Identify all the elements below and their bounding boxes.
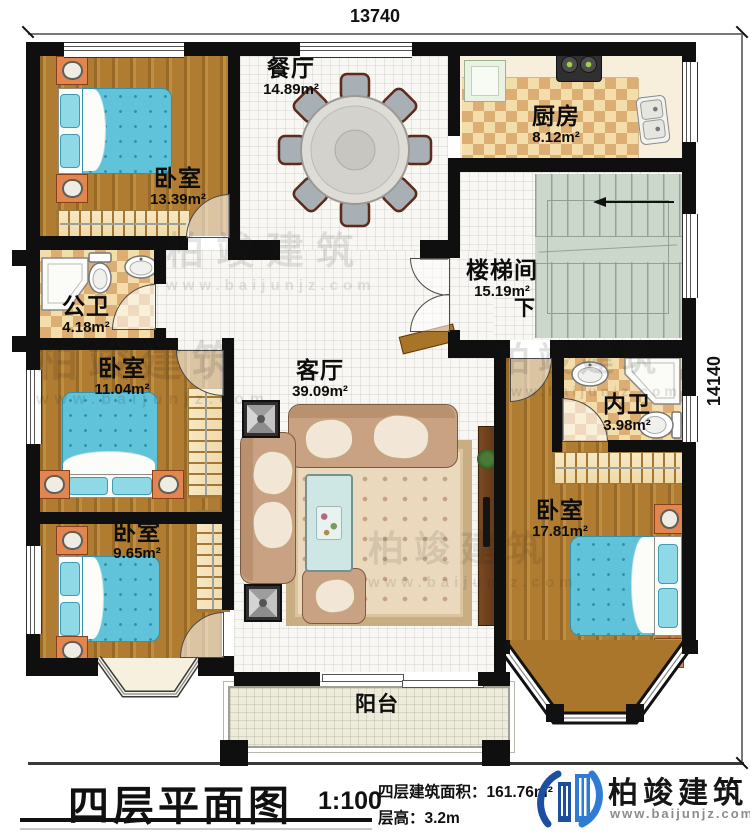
window bbox=[26, 370, 42, 444]
dimension-line-top bbox=[28, 33, 744, 35]
stair-rail bbox=[547, 200, 669, 314]
wall bbox=[478, 672, 510, 686]
room-area: 3.98m² bbox=[603, 417, 651, 434]
wall bbox=[12, 336, 26, 352]
armchair bbox=[302, 568, 366, 624]
bed-sheet-fold bbox=[83, 89, 106, 171]
room-area: 11.04m² bbox=[94, 381, 149, 398]
fridge bbox=[464, 60, 506, 102]
pillow bbox=[658, 588, 678, 628]
sliding-door-panel bbox=[322, 674, 404, 682]
pillow bbox=[112, 477, 152, 495]
room-area: 8.12m² bbox=[532, 129, 580, 146]
bed bbox=[58, 88, 170, 172]
nightstand bbox=[152, 470, 184, 499]
pillow bbox=[60, 562, 80, 596]
stair-arrow-tail bbox=[606, 201, 674, 203]
wall bbox=[26, 658, 98, 676]
room-name: 厨房 bbox=[532, 104, 580, 129]
pillow bbox=[60, 134, 80, 168]
sofa bbox=[288, 404, 458, 468]
room-name: 内卫 bbox=[603, 392, 651, 417]
floor-height-text: 层高：3.2m bbox=[378, 806, 460, 828]
sofa-cushion bbox=[303, 417, 355, 462]
stair-down-label: 下 bbox=[514, 292, 535, 322]
wall bbox=[420, 240, 448, 260]
wall bbox=[552, 440, 562, 452]
coffee-table bbox=[305, 474, 353, 572]
corner-speaker bbox=[242, 400, 280, 438]
room-name: 卧室 bbox=[113, 520, 161, 545]
nightstand bbox=[56, 526, 88, 555]
wall bbox=[228, 240, 280, 260]
wall bbox=[448, 172, 460, 258]
sofa-cushion bbox=[251, 499, 295, 550]
room-label-bedroom-bottom-left: 卧室 9.65m² bbox=[113, 520, 161, 562]
room-name: 卧室 bbox=[150, 166, 206, 191]
wall bbox=[198, 658, 234, 676]
bay-window-bottom-left bbox=[94, 656, 204, 702]
wall bbox=[222, 524, 234, 610]
wall bbox=[26, 338, 178, 350]
room-name: 餐厅 bbox=[263, 56, 319, 81]
room-area: 4.18m² bbox=[62, 319, 110, 336]
brand-website: www.baijunjz.com bbox=[610, 806, 750, 821]
room-label-ensuite-bath: 内卫 3.98m² bbox=[603, 392, 651, 434]
wall bbox=[154, 250, 166, 284]
pillow bbox=[658, 544, 678, 584]
kitchen-sink bbox=[635, 94, 671, 145]
bed-mattress bbox=[82, 556, 160, 642]
sofa-cushion bbox=[371, 413, 431, 462]
sink-basin bbox=[642, 119, 666, 141]
bed bbox=[62, 392, 156, 496]
window bbox=[26, 546, 42, 634]
wall bbox=[448, 340, 510, 358]
room-label-living: 客厅 39.09m² bbox=[292, 358, 348, 400]
corner-speaker bbox=[244, 584, 282, 622]
bed bbox=[570, 536, 682, 634]
bed-sheet-fold bbox=[63, 451, 155, 474]
bay-window-bottom-right bbox=[494, 640, 698, 766]
window bbox=[682, 62, 698, 142]
room-label-kitchen: 厨房 8.12m² bbox=[532, 104, 580, 146]
room-label-bedroom-bottom-right: 卧室 17.81m² bbox=[532, 498, 588, 540]
bed-mattress bbox=[62, 392, 158, 476]
room-name: 公卫 bbox=[62, 294, 110, 319]
bed-sheet-fold bbox=[631, 537, 654, 633]
sofa bbox=[240, 432, 296, 584]
fridge-top bbox=[471, 66, 499, 96]
dimension-tick bbox=[22, 26, 35, 39]
wall bbox=[448, 56, 460, 136]
brand-logo-icon bbox=[534, 766, 606, 832]
bed bbox=[58, 556, 158, 640]
room-label-balcony: 阳台 bbox=[355, 694, 399, 717]
window bbox=[64, 42, 184, 58]
building-area-text: 四层建筑面积：161.76m² bbox=[378, 780, 553, 802]
bed-mattress bbox=[82, 88, 172, 174]
wardrobe bbox=[56, 210, 190, 238]
nightstand bbox=[38, 470, 70, 499]
wall bbox=[550, 340, 696, 358]
wardrobe bbox=[552, 452, 684, 484]
tv bbox=[483, 497, 490, 547]
sink-basin bbox=[640, 99, 664, 121]
dimension-line-right bbox=[741, 33, 743, 764]
sofa-back bbox=[241, 433, 253, 581]
nightstand bbox=[56, 174, 88, 203]
sofa-back bbox=[289, 405, 455, 418]
pillow bbox=[60, 94, 80, 128]
drawing-scale: 1:100 bbox=[318, 787, 382, 816]
pillow bbox=[68, 477, 108, 495]
room-area: 13.39m² bbox=[150, 191, 206, 208]
room-area: 14.89m² bbox=[263, 81, 319, 98]
staircase bbox=[535, 174, 682, 338]
frame-line bbox=[28, 762, 744, 765]
wardrobe bbox=[188, 388, 224, 498]
floor-plan: 卧室 13.39m² 餐厅 14.89m² 厨房 8.12m² 公卫 4.18m… bbox=[0, 0, 750, 837]
room-name: 楼梯间 bbox=[466, 258, 538, 283]
drawing-title: 四层平面图 bbox=[68, 772, 293, 832]
room-name: 客厅 bbox=[292, 358, 348, 383]
dimension-top: 13740 bbox=[350, 6, 400, 27]
room-label-bedroom-top-left: 卧室 13.39m² bbox=[150, 166, 206, 208]
nightstand bbox=[56, 56, 88, 85]
room-area: 17.81m² bbox=[532, 523, 588, 540]
room-label-bedroom-mid-left: 卧室 11.04m² bbox=[94, 356, 149, 398]
room-area: 39.09m² bbox=[292, 383, 348, 400]
bed-mattress bbox=[570, 536, 656, 636]
title-underline-thin bbox=[20, 828, 372, 830]
balcony-outline bbox=[223, 681, 515, 753]
window bbox=[682, 396, 698, 442]
wall bbox=[494, 358, 506, 672]
room-label-public-bath: 公卫 4.18m² bbox=[62, 294, 110, 336]
title-underline bbox=[20, 818, 372, 822]
table-decor bbox=[316, 506, 342, 540]
wall bbox=[26, 236, 188, 250]
window bbox=[682, 214, 698, 298]
room-area: 9.65m² bbox=[113, 545, 161, 562]
balcony-post bbox=[220, 740, 248, 766]
room-name: 卧室 bbox=[532, 498, 588, 523]
room-name: 卧室 bbox=[94, 356, 149, 381]
wall bbox=[448, 158, 682, 172]
nightstand bbox=[654, 504, 684, 534]
balcony-post bbox=[482, 740, 510, 766]
wall bbox=[234, 672, 320, 686]
armchair-cushion bbox=[313, 576, 357, 615]
room-label-dining: 餐厅 14.89m² bbox=[263, 56, 319, 98]
pillow bbox=[60, 602, 80, 636]
burner bbox=[561, 56, 578, 73]
sofa-cushion bbox=[250, 448, 296, 497]
wall bbox=[12, 250, 26, 266]
bed-sheet-fold bbox=[83, 557, 104, 639]
burner bbox=[580, 56, 597, 73]
sliding-door-panel bbox=[402, 680, 484, 688]
stair-direction-arrow bbox=[593, 197, 606, 207]
dimension-right: 14140 bbox=[704, 356, 725, 406]
room-name: 阳台 bbox=[355, 694, 399, 717]
